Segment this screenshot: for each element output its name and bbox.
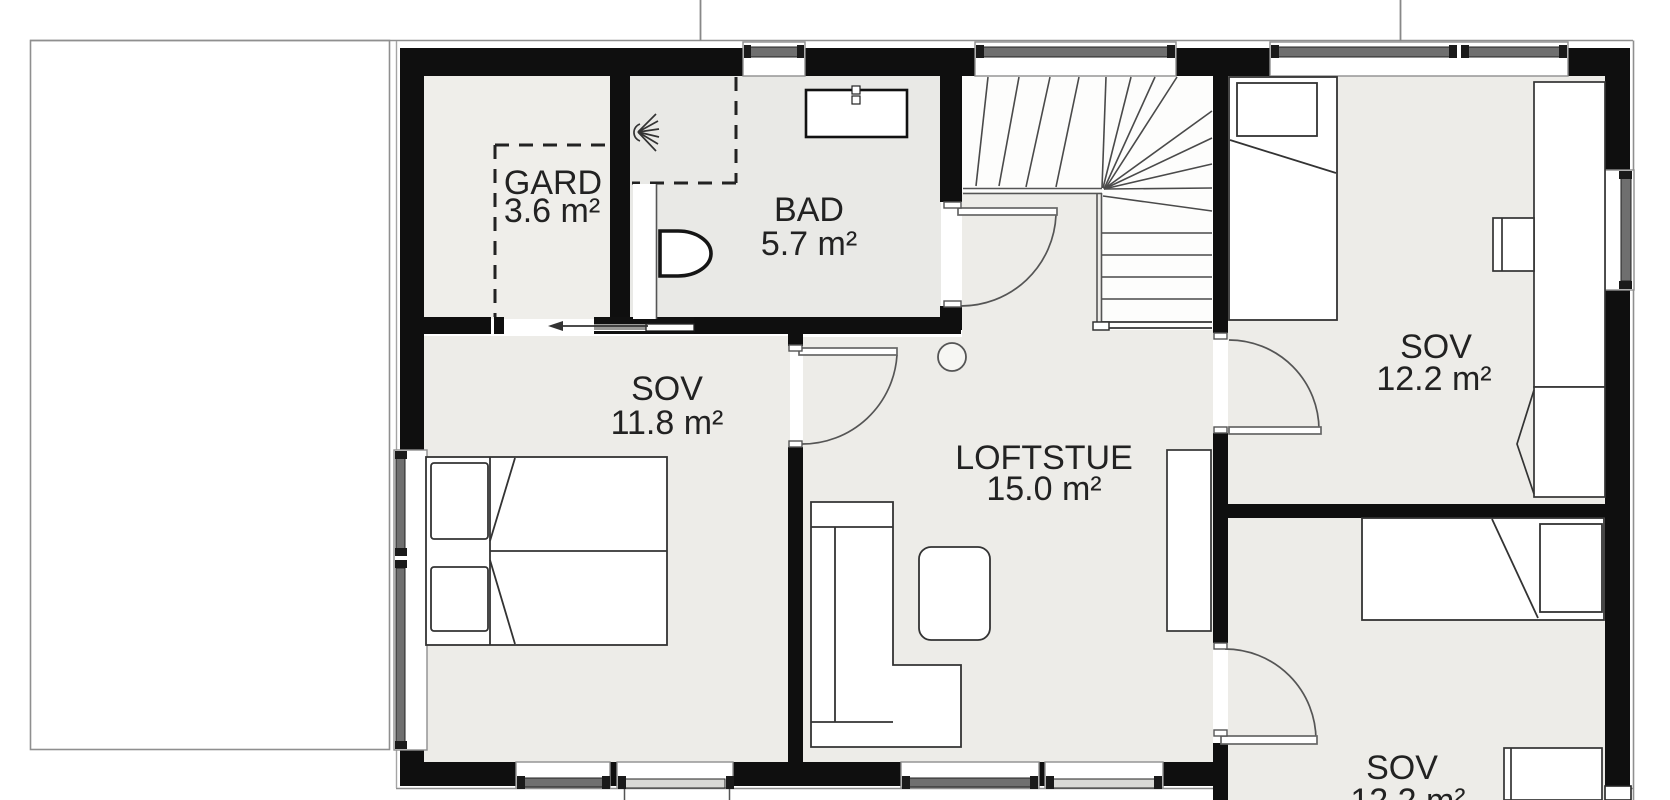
svg-text:11.8 m²: 11.8 m² — [611, 404, 724, 442]
svg-text:SOV: SOV — [631, 370, 703, 408]
svg-text:5.7 m²: 5.7 m² — [761, 225, 857, 263]
svg-text:15.0 m²: 15.0 m² — [986, 470, 1101, 508]
svg-text:12.2 m²: 12.2 m² — [1350, 782, 1465, 800]
svg-text:3.6 m²: 3.6 m² — [504, 192, 600, 230]
svg-text:BAD: BAD — [774, 191, 844, 229]
svg-text:12.2 m²: 12.2 m² — [1376, 360, 1491, 398]
